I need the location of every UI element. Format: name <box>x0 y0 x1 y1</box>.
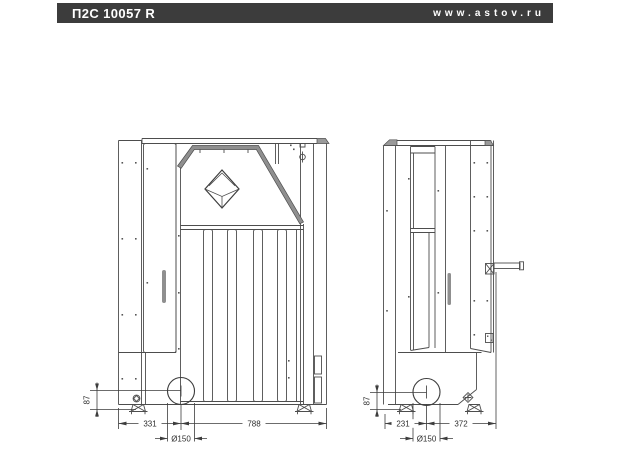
dim-label-331: 331 <box>143 419 157 428</box>
top-corner-cap <box>317 139 329 144</box>
dim-label-diameter-front: Ø150 <box>171 434 191 443</box>
door-slat <box>204 230 213 402</box>
dim-label-231: 231 <box>396 419 410 428</box>
dim-label-diameter-side: Ø150 <box>417 434 437 443</box>
rivets <box>386 162 488 336</box>
dim-label-87-side: 87 <box>363 396 372 405</box>
technical-drawing: 331 788 Ø150 87 <box>0 0 624 460</box>
rivets <box>122 145 295 380</box>
front-view <box>119 139 330 415</box>
adjustable-foot <box>465 405 484 415</box>
door-handle-slot <box>162 270 166 303</box>
door-slat <box>254 230 263 402</box>
door-slat <box>228 230 237 402</box>
side-handle-slot <box>448 273 452 305</box>
top-rear-cap <box>485 141 494 146</box>
adjustable-foot <box>295 405 314 415</box>
top-front-cap <box>384 140 398 146</box>
dim-label-87-front: 87 <box>83 395 92 404</box>
door-slat <box>278 230 287 402</box>
hinge-bracket <box>486 334 494 343</box>
dim-label-372: 372 <box>454 419 468 428</box>
side-vent <box>315 356 322 374</box>
page: П2С 10057 R www.astov.ru <box>0 0 624 460</box>
side-view <box>384 140 524 414</box>
front-view-dimensions: 331 788 Ø150 87 <box>83 383 327 444</box>
left-decor-panel <box>144 144 177 353</box>
side-vent <box>315 377 322 403</box>
dim-label-788: 788 <box>247 419 261 428</box>
hood-band <box>178 146 304 224</box>
